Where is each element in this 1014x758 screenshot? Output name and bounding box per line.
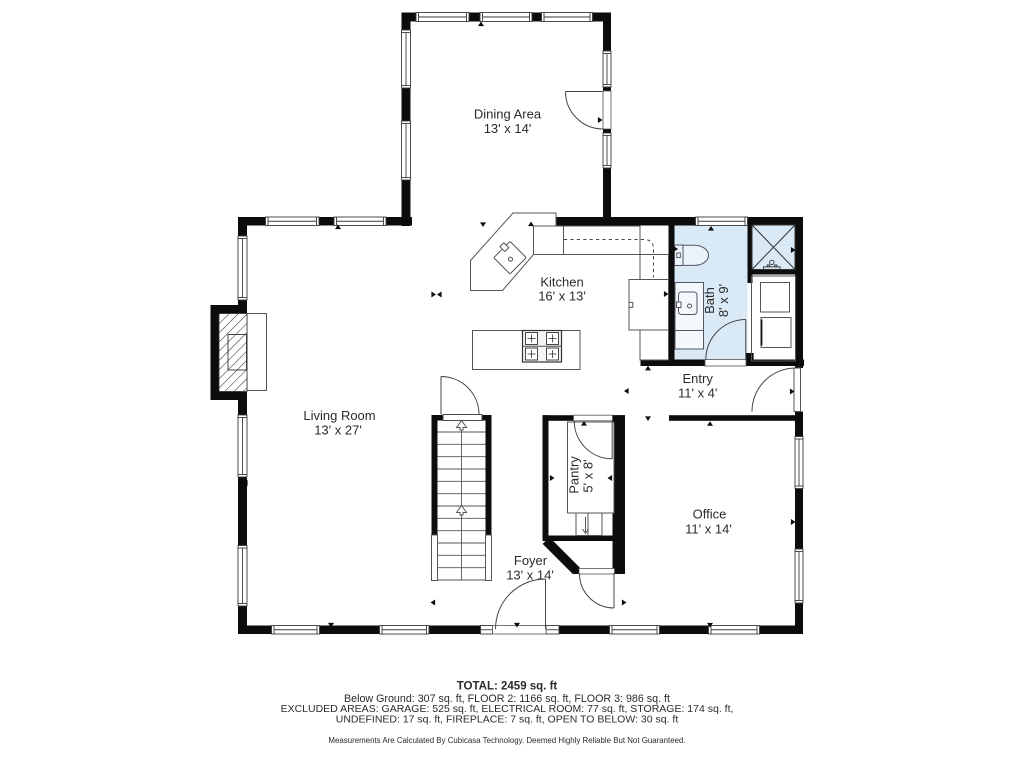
svg-text:16' x 13': 16' x 13'	[538, 289, 586, 304]
svg-text:13' x 14': 13' x 14'	[484, 121, 532, 136]
svg-text:11' x 14': 11' x 14'	[685, 522, 732, 537]
svg-text:11' x 4': 11' x 4'	[678, 386, 717, 401]
svg-text:Kitchen: Kitchen	[540, 275, 583, 290]
svg-text:Living Room: Living Room	[303, 408, 375, 423]
svg-text:Bath: Bath	[702, 287, 717, 314]
svg-text:UNDEFINED: 17 sq. ft, FIREPLAC: UNDEFINED: 17 sq. ft, FIREPLACE: 7 sq. f…	[336, 713, 679, 725]
svg-text:13' x 14': 13' x 14'	[506, 568, 554, 583]
svg-text:Dining Area: Dining Area	[474, 107, 542, 122]
svg-text:TOTAL: 2459 sq. ft: TOTAL: 2459 sq. ft	[457, 681, 558, 693]
svg-text:Measurements Are Calculated By: Measurements Are Calculated By Cubicasa …	[328, 736, 685, 745]
svg-text:Office: Office	[693, 507, 727, 522]
svg-text:Entry: Entry	[683, 371, 714, 386]
svg-text:Foyer: Foyer	[514, 553, 548, 568]
svg-text:Pantry: Pantry	[567, 456, 582, 494]
svg-text:5' x 8': 5' x 8'	[581, 459, 596, 492]
svg-text:8' x 9': 8' x 9'	[716, 284, 731, 317]
svg-text:13' x 27': 13' x 27'	[314, 423, 362, 438]
